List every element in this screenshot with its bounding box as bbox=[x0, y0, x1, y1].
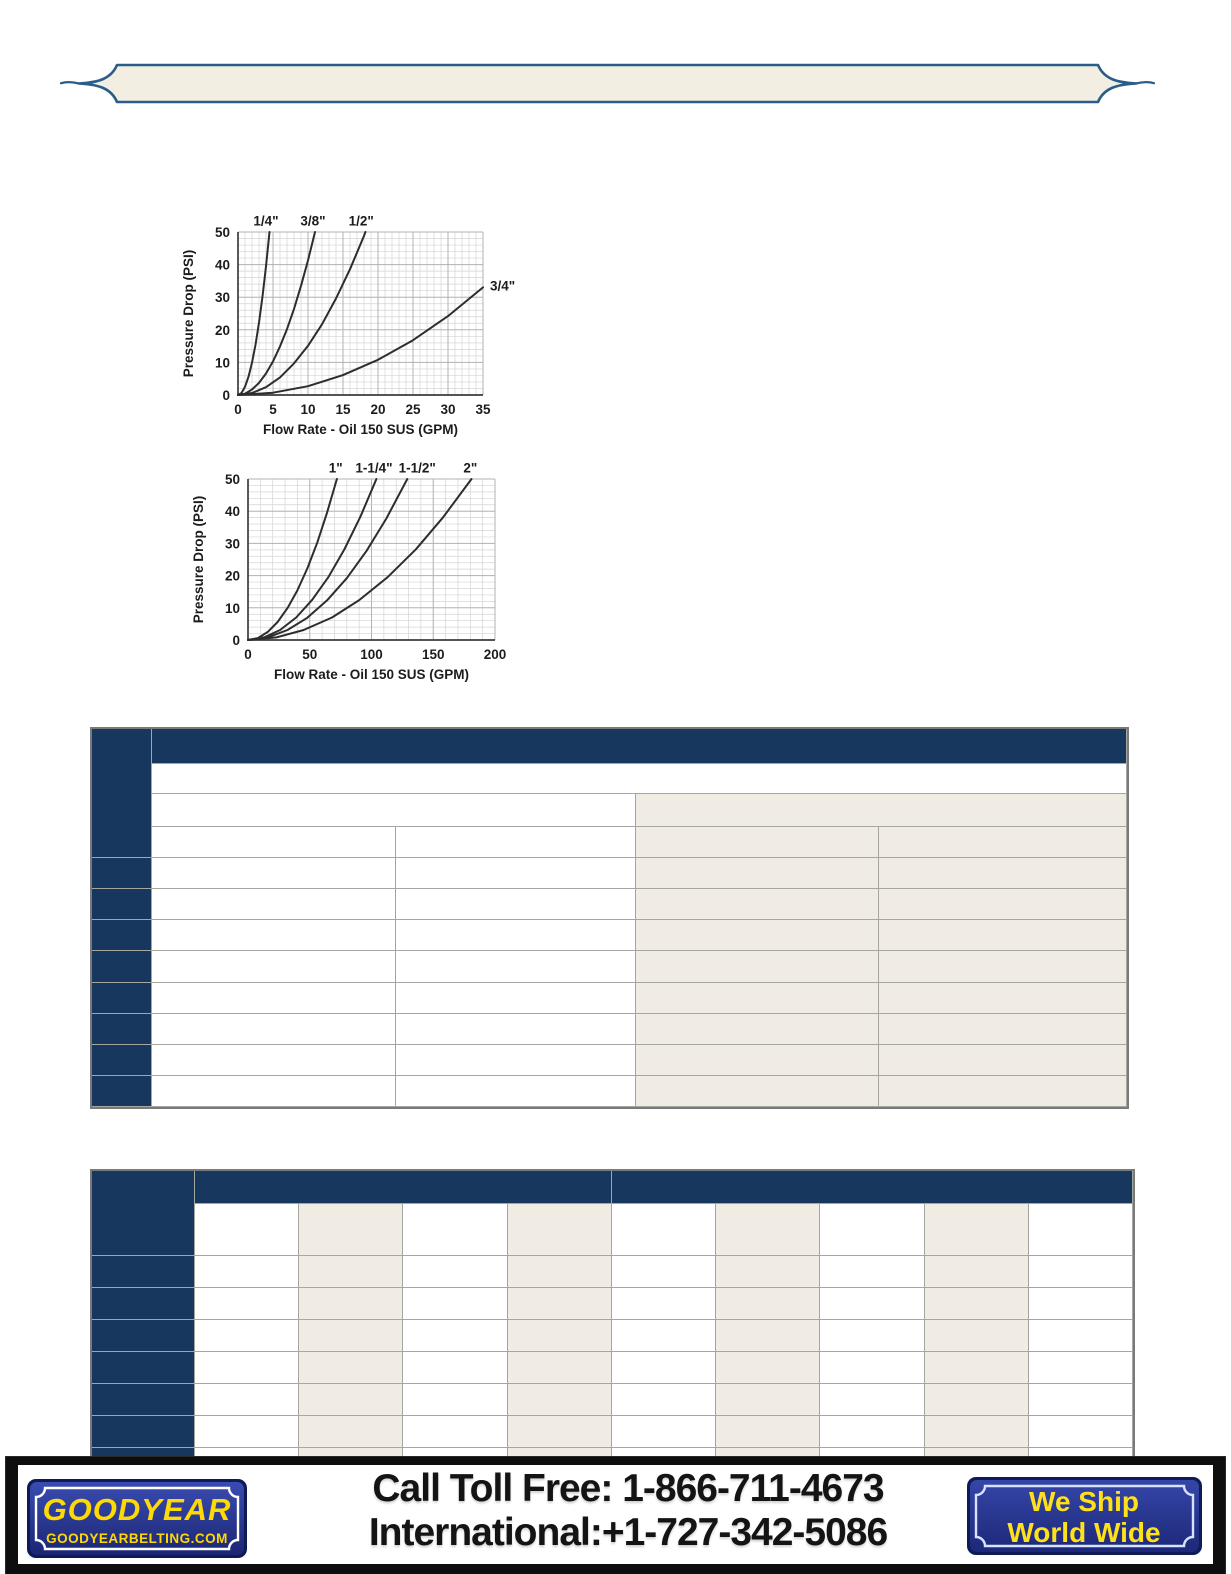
svg-text:1-1/4": 1-1/4" bbox=[355, 461, 392, 476]
table-cell bbox=[299, 1204, 403, 1256]
table-cell bbox=[195, 1416, 299, 1448]
table-cell bbox=[820, 1204, 924, 1256]
ribbon-banner bbox=[55, 55, 1155, 115]
table-cell bbox=[636, 920, 879, 951]
table-cell bbox=[925, 1416, 1029, 1448]
table-cell bbox=[152, 1014, 396, 1045]
table-cell bbox=[403, 1204, 507, 1256]
table-cell bbox=[636, 1076, 879, 1107]
spec-table-upper bbox=[90, 727, 1129, 1109]
row-label-cell bbox=[92, 983, 152, 1014]
we-ship-world-wide-badge: We Ship World Wide bbox=[966, 1476, 1203, 1556]
table-cell bbox=[508, 1320, 612, 1352]
table-cell bbox=[152, 983, 396, 1014]
row-label-cell bbox=[92, 1014, 152, 1045]
table-cell bbox=[299, 1416, 403, 1448]
svg-text:1-1/2": 1-1/2" bbox=[399, 461, 436, 476]
svg-text:10: 10 bbox=[225, 601, 240, 616]
svg-text:20: 20 bbox=[225, 569, 240, 584]
svg-text:30: 30 bbox=[225, 536, 240, 551]
table-cell bbox=[716, 1416, 820, 1448]
goodyear-wordmark: GOODYEAR bbox=[43, 1492, 232, 1527]
table-cell bbox=[152, 889, 396, 920]
svg-text:Flow Rate - Oil 150 SUS (GPM): Flow Rate - Oil 150 SUS (GPM) bbox=[263, 422, 458, 437]
table-cell bbox=[299, 1384, 403, 1416]
table-subheader-left bbox=[152, 794, 636, 827]
svg-text:20: 20 bbox=[370, 402, 385, 417]
table-cell bbox=[195, 1352, 299, 1384]
svg-text:40: 40 bbox=[215, 258, 230, 273]
table-cell bbox=[152, 1076, 396, 1107]
table-cell bbox=[716, 1384, 820, 1416]
table-cell bbox=[508, 1204, 612, 1256]
svg-text:50: 50 bbox=[225, 472, 240, 487]
table-cell bbox=[820, 1256, 924, 1288]
table-cell bbox=[396, 1045, 636, 1076]
pressure-drop-chart-large-sizes: 05010015020001020304050Flow Rate - Oil 1… bbox=[170, 450, 550, 700]
table-cell bbox=[396, 983, 636, 1014]
ship-badge-line1: We Ship bbox=[1029, 1486, 1139, 1517]
row-label-cell bbox=[92, 920, 152, 951]
table-cell bbox=[925, 1288, 1029, 1320]
table-cell bbox=[299, 1352, 403, 1384]
row-label-cell bbox=[92, 1288, 195, 1320]
table-cell bbox=[508, 1288, 612, 1320]
table-cell bbox=[508, 1352, 612, 1384]
svg-text:25: 25 bbox=[405, 402, 421, 417]
table-cell bbox=[1029, 1320, 1133, 1352]
table-cell bbox=[636, 889, 879, 920]
table-col-header bbox=[396, 827, 636, 858]
toll-free-line: Call Toll Free: 1-866-711-4673 bbox=[298, 1467, 958, 1511]
table-cell bbox=[195, 1320, 299, 1352]
table-col-header bbox=[879, 827, 1127, 858]
table-cell bbox=[820, 1320, 924, 1352]
table-cell bbox=[612, 1204, 716, 1256]
table-cell bbox=[925, 1352, 1029, 1384]
table-cell bbox=[396, 1014, 636, 1045]
svg-text:0: 0 bbox=[234, 402, 242, 417]
svg-text:150: 150 bbox=[422, 647, 445, 662]
svg-text:Flow Rate - Oil 150 SUS (GPM): Flow Rate - Oil 150 SUS (GPM) bbox=[274, 667, 469, 682]
table-cell bbox=[612, 1384, 716, 1416]
table-corner-cell bbox=[92, 729, 152, 858]
svg-text:30: 30 bbox=[215, 290, 230, 305]
svg-text:3/8": 3/8" bbox=[300, 213, 325, 228]
table-cell bbox=[636, 858, 879, 889]
table-cell bbox=[612, 1256, 716, 1288]
table-header-band-left bbox=[195, 1171, 612, 1204]
table-cell bbox=[299, 1320, 403, 1352]
svg-text:50: 50 bbox=[215, 225, 230, 240]
table-cell bbox=[716, 1320, 820, 1352]
table-cell bbox=[879, 951, 1127, 982]
table-cell bbox=[1029, 1256, 1133, 1288]
table-cell bbox=[195, 1204, 299, 1256]
row-label-cell bbox=[92, 1320, 195, 1352]
international-line: International:+1-727-342-5086 bbox=[298, 1511, 958, 1555]
table-cell bbox=[403, 1416, 507, 1448]
table-cell bbox=[879, 983, 1127, 1014]
table-col-header bbox=[152, 827, 396, 858]
table-cell bbox=[612, 1320, 716, 1352]
row-label-cell bbox=[92, 1045, 152, 1076]
table-cell bbox=[820, 1384, 924, 1416]
svg-text:0: 0 bbox=[222, 388, 230, 403]
svg-text:15: 15 bbox=[335, 402, 351, 417]
phone-numbers: Call Toll Free: 1-866-711-4673 Internati… bbox=[298, 1467, 958, 1555]
table-cell bbox=[636, 983, 879, 1014]
table-header-band-right bbox=[612, 1171, 1133, 1204]
spec-table-lower bbox=[90, 1169, 1135, 1482]
table-cell bbox=[403, 1352, 507, 1384]
table-cell bbox=[508, 1416, 612, 1448]
footer-inner-strip: GOODYEAR GOODYEARBELTING.COM Call Toll F… bbox=[18, 1465, 1213, 1564]
svg-text:1/2": 1/2" bbox=[349, 213, 374, 228]
table-cell bbox=[636, 1014, 879, 1045]
ribbon-shape bbox=[79, 65, 1136, 102]
svg-text:0: 0 bbox=[244, 647, 252, 662]
goodyear-website: GOODYEARBELTING.COM bbox=[46, 1531, 228, 1546]
table-cell bbox=[612, 1288, 716, 1320]
svg-text:40: 40 bbox=[225, 504, 240, 519]
svg-text:Pressure Drop (PSI): Pressure Drop (PSI) bbox=[181, 250, 196, 378]
table-cell bbox=[396, 1076, 636, 1107]
table-cell bbox=[879, 1076, 1127, 1107]
table-cell bbox=[195, 1256, 299, 1288]
row-label-cell bbox=[92, 858, 152, 889]
svg-text:10: 10 bbox=[215, 355, 230, 370]
table-cell bbox=[716, 1352, 820, 1384]
table-cell bbox=[820, 1352, 924, 1384]
table-header-band bbox=[152, 729, 1127, 764]
svg-text:100: 100 bbox=[360, 647, 383, 662]
svg-text:Pressure Drop (PSI): Pressure Drop (PSI) bbox=[191, 496, 206, 624]
page: 0510152025303501020304050Flow Rate - Oil… bbox=[0, 0, 1231, 1574]
row-label-cell bbox=[92, 1416, 195, 1448]
table-cell bbox=[925, 1320, 1029, 1352]
svg-text:5: 5 bbox=[269, 402, 277, 417]
svg-text:1/4": 1/4" bbox=[253, 213, 278, 228]
table-cell bbox=[1029, 1384, 1133, 1416]
table-cell bbox=[879, 889, 1127, 920]
svg-text:30: 30 bbox=[440, 402, 455, 417]
row-label-cell bbox=[92, 1352, 195, 1384]
table-cell bbox=[152, 1045, 396, 1076]
table-col-header bbox=[636, 827, 879, 858]
table-cell bbox=[152, 858, 396, 889]
table-cell bbox=[403, 1384, 507, 1416]
table-cell bbox=[820, 1288, 924, 1320]
row-label-cell bbox=[92, 1384, 195, 1416]
row-label-cell bbox=[92, 1076, 152, 1107]
table-cell bbox=[879, 920, 1127, 951]
row-label-cell bbox=[92, 1256, 195, 1288]
table-cell bbox=[636, 951, 879, 982]
table-cell bbox=[716, 1204, 820, 1256]
table-cell bbox=[1029, 1204, 1133, 1256]
table-cell bbox=[636, 1045, 879, 1076]
table-cell bbox=[925, 1384, 1029, 1416]
table-cell bbox=[396, 889, 636, 920]
row-label-cell bbox=[92, 951, 152, 982]
svg-text:50: 50 bbox=[302, 647, 317, 662]
table-cell bbox=[716, 1256, 820, 1288]
svg-text:35: 35 bbox=[475, 402, 491, 417]
svg-text:3/4": 3/4" bbox=[490, 279, 515, 294]
table-subheader-right bbox=[636, 794, 1127, 827]
table-cell bbox=[508, 1384, 612, 1416]
table-cell bbox=[1029, 1288, 1133, 1320]
svg-text:1": 1" bbox=[329, 461, 343, 476]
table-cell bbox=[925, 1256, 1029, 1288]
footer-bar: GOODYEAR GOODYEARBELTING.COM Call Toll F… bbox=[6, 1457, 1225, 1574]
table-cell bbox=[508, 1256, 612, 1288]
svg-text:10: 10 bbox=[300, 402, 315, 417]
table-cell bbox=[820, 1416, 924, 1448]
table-cell bbox=[299, 1256, 403, 1288]
table-cell bbox=[299, 1288, 403, 1320]
goodyear-logo-badge[interactable]: GOODYEAR GOODYEARBELTING.COM bbox=[26, 1478, 248, 1559]
table-cell bbox=[925, 1204, 1029, 1256]
table-cell bbox=[403, 1288, 507, 1320]
table-row bbox=[152, 764, 1127, 794]
table-cell bbox=[195, 1384, 299, 1416]
table-cell bbox=[195, 1288, 299, 1320]
table-cell bbox=[396, 858, 636, 889]
table-corner-cell bbox=[92, 1171, 195, 1256]
table-cell bbox=[1029, 1352, 1133, 1384]
svg-text:2": 2" bbox=[463, 461, 477, 476]
table-cell bbox=[396, 951, 636, 982]
table-cell bbox=[879, 1045, 1127, 1076]
ship-badge-line2: World Wide bbox=[1007, 1517, 1160, 1548]
table-cell bbox=[612, 1416, 716, 1448]
table-cell bbox=[396, 920, 636, 951]
table-cell bbox=[152, 920, 396, 951]
table-cell bbox=[403, 1320, 507, 1352]
row-label-cell bbox=[92, 889, 152, 920]
table-cell bbox=[879, 858, 1127, 889]
table-cell bbox=[152, 951, 396, 982]
svg-text:200: 200 bbox=[484, 647, 507, 662]
table-cell bbox=[879, 1014, 1127, 1045]
table-cell bbox=[612, 1352, 716, 1384]
table-cell bbox=[1029, 1416, 1133, 1448]
svg-text:20: 20 bbox=[215, 323, 230, 338]
pressure-drop-chart-small-sizes: 0510152025303501020304050Flow Rate - Oil… bbox=[160, 200, 540, 450]
table-cell bbox=[716, 1288, 820, 1320]
table-cell bbox=[403, 1256, 507, 1288]
svg-text:0: 0 bbox=[232, 633, 240, 648]
